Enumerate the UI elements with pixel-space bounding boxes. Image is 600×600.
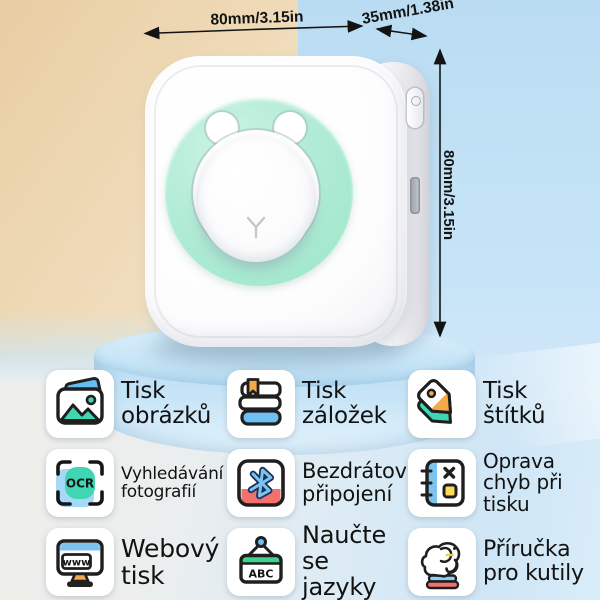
feature-print-images: Tisk obrázků <box>46 370 227 438</box>
monitor-icon: www <box>52 534 108 590</box>
ocr-text: OCR <box>66 477 94 491</box>
photo-icon <box>52 376 108 432</box>
height-dimension-label: 80mm/3.15in <box>440 150 457 240</box>
books-icon <box>233 376 289 432</box>
feature-web-print: www Webový tisk <box>46 528 227 596</box>
feature-label: Tisk obrázků <box>121 379 211 429</box>
feature-grid: Tisk obrázků Tisk záložek <box>46 370 598 596</box>
feature-label: Tisk záložek <box>302 379 387 429</box>
tag-icon <box>414 376 470 432</box>
feature-wireless: Bezdrátové připojení <box>227 449 408 517</box>
www-text: www <box>63 558 91 569</box>
ocr-icon: OCR <box>52 455 108 511</box>
feature-print-labels: Tisk štítků <box>408 370 588 438</box>
feature-label: Bezdrátové připojení <box>302 460 420 505</box>
bluetooth-icon <box>233 455 289 511</box>
abc-sign-icon: ABC <box>233 534 289 590</box>
feature-label: Naučte se jazyky <box>302 523 408 600</box>
feature-error-correction: Oprava chyb při tisku <box>408 449 588 517</box>
notebook-icon <box>414 455 470 511</box>
feature-learn-languages: ABC Naučte se jazyky <box>227 528 408 596</box>
abc-text: ABC <box>249 568 274 581</box>
feature-label: Tisk štítků <box>483 379 545 429</box>
feature-diy-manual: Příručka pro kutily <box>408 528 588 596</box>
usb-port <box>410 177 420 214</box>
feature-print-bookmarks: Tisk záložek <box>227 370 408 438</box>
cat-chin-mark <box>243 214 269 240</box>
feature-label: Vyhledávání fotografií <box>121 465 223 502</box>
feature-label: Webový tisk <box>121 535 219 589</box>
feature-label: Příručka pro kutily <box>483 538 584 586</box>
feature-photo-search: OCR Vyhledávání fotografií <box>46 449 227 517</box>
power-button <box>407 88 423 128</box>
product-infographic: 80mm/3.15in 35mm/1.38in 80mm/3.15in Tisk… <box>0 0 600 600</box>
feature-label: Oprava chyb při tisku <box>483 451 562 516</box>
printer-lens-cover <box>198 136 314 262</box>
elephant-icon <box>414 534 470 590</box>
